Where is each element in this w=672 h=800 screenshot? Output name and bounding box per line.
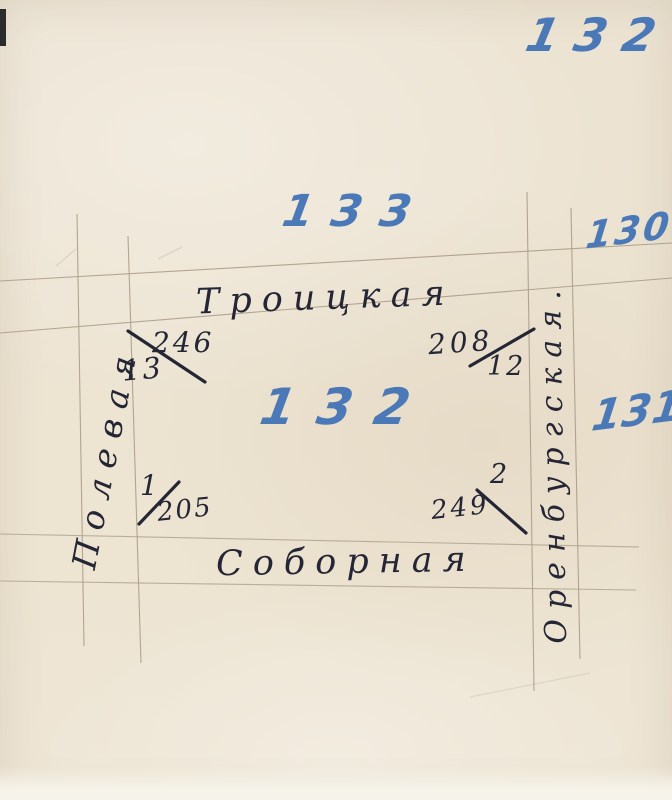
block-number-northeast: 130	[584, 206, 672, 254]
plot-number-top-right-upper: 208	[427, 327, 494, 359]
street-line-west-outer	[77, 214, 84, 646]
street-line-east-inner	[527, 192, 534, 691]
paper-crease	[158, 247, 182, 259]
block-number-north: 133	[279, 190, 433, 234]
scanned-plan-page: 132 133 130 132 131 Троицкая Соборная По…	[0, 0, 672, 800]
plot-number-bottom-left-lower: 205	[156, 494, 214, 526]
block-number-center: 132	[257, 382, 436, 432]
paper-crease	[56, 249, 76, 266]
street-line-west-inner	[128, 236, 141, 663]
scan-edge-mark	[0, 9, 6, 46]
street-name-north: Троицкая	[195, 276, 455, 320]
plot-number-bottom-right-upper: 2	[490, 461, 507, 488]
block-number-east: 131	[589, 384, 672, 438]
street-name-east: Оренбургская.	[536, 280, 572, 644]
street-line-north-upper	[0, 243, 672, 281]
paper-crease	[470, 673, 590, 697]
plot-number-top-right-lower: 12	[487, 353, 525, 380]
sheet-number: 132	[522, 12, 672, 58]
plot-number-top-left-lower: 13	[121, 353, 164, 385]
plot-number-bottom-left-upper: 1	[140, 472, 158, 500]
plot-number-bottom-right-lower: 249	[430, 492, 491, 524]
street-name-south: Соборная	[216, 543, 476, 583]
